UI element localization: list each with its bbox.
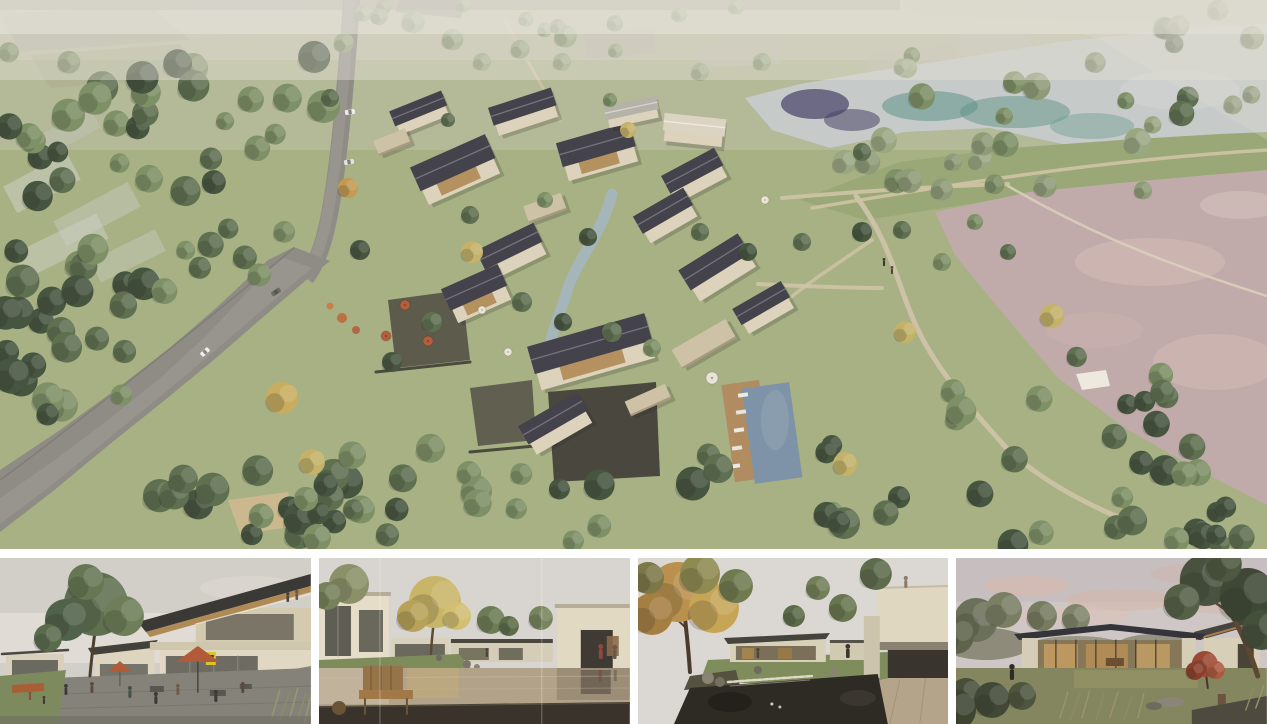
aerial-masterplan-rendering [0,0,1267,549]
dusk-pavilion-rendering-canvas [956,558,1267,724]
thumbnail-reflecting-pool-view [319,558,630,724]
thumbnail-street-cafe-view [0,558,311,724]
thumbnail-strip [0,558,1267,724]
thumbnail-dusk-pavilion-view [956,558,1267,724]
thumbnail-garden-pond-view [638,558,949,724]
garden-pond-rendering-canvas [638,558,949,724]
reflecting-pool-rendering-canvas [319,558,630,724]
aerial-rendering-canvas [0,0,1267,549]
street-cafe-rendering-canvas [0,558,311,724]
presentation-board [0,0,1267,724]
